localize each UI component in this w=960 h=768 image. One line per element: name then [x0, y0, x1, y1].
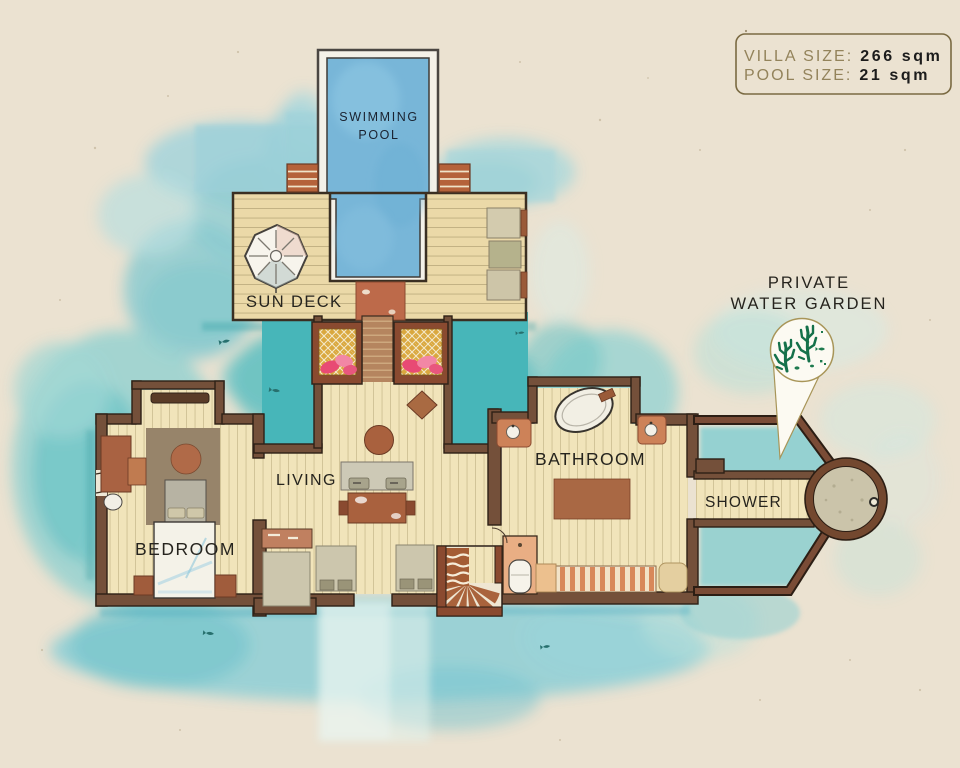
- svg-text:PRIVATE: PRIVATE: [768, 274, 850, 292]
- svg-text:POOL SIZE: 21 sqm: POOL SIZE: 21 sqm: [744, 67, 930, 84]
- svg-text:SUN DECK: SUN DECK: [246, 293, 342, 311]
- svg-text:POOL: POOL: [358, 128, 399, 142]
- svg-text:BEDROOM: BEDROOM: [135, 539, 236, 559]
- svg-text:LIVING: LIVING: [276, 472, 337, 489]
- svg-text:SWIMMING: SWIMMING: [339, 110, 418, 124]
- svg-text:SHOWER: SHOWER: [705, 494, 782, 511]
- svg-text:VILLA SIZE: 266 sqm: VILLA SIZE: 266 sqm: [744, 48, 942, 65]
- svg-text:WATER GARDEN: WATER GARDEN: [731, 295, 888, 313]
- svg-text:BATHROOM: BATHROOM: [535, 449, 646, 469]
